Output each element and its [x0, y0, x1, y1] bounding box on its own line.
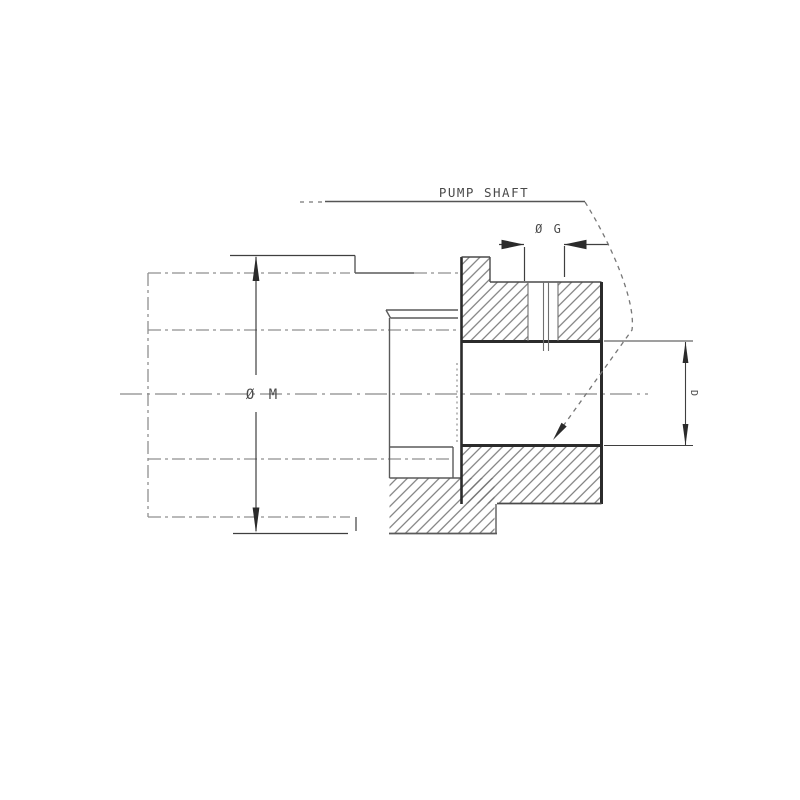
dim-d-arrow-up [683, 342, 689, 364]
dim-g-arrow-left [564, 240, 587, 250]
pump-shaft-label: PUMP SHAFT [439, 185, 529, 200]
dim-d-label: D [688, 390, 699, 396]
callout-leader-arrow [553, 423, 567, 440]
hub-boss-hatch [462, 257, 490, 282]
dim-g-arrow-right [502, 240, 525, 250]
dimension-d: D [604, 341, 699, 446]
dim-g-label: Ø G [535, 222, 563, 236]
hub-lower-flange-hatch [462, 446, 602, 504]
pump-shaft-coupling-section-drawing: Ø M Ø G D PUMP SHAFT [0, 0, 800, 800]
engineering-drawing-canvas: Ø M Ø G D PUMP SHAFT [0, 0, 800, 800]
dim-m-arrow-up [253, 256, 260, 282]
dimension-dia-g: Ø G [499, 222, 609, 281]
hub-upper-flange-hatch-right [558, 282, 602, 342]
dim-m-label: Ø M [246, 387, 280, 403]
dim-d-arrow-down [683, 424, 689, 446]
pump-hub [461, 257, 602, 504]
dim-m-arrow-down [253, 508, 260, 534]
sleeve-top-chamfer [386, 310, 391, 318]
hub-upper-flange-hatch-left [462, 282, 528, 342]
